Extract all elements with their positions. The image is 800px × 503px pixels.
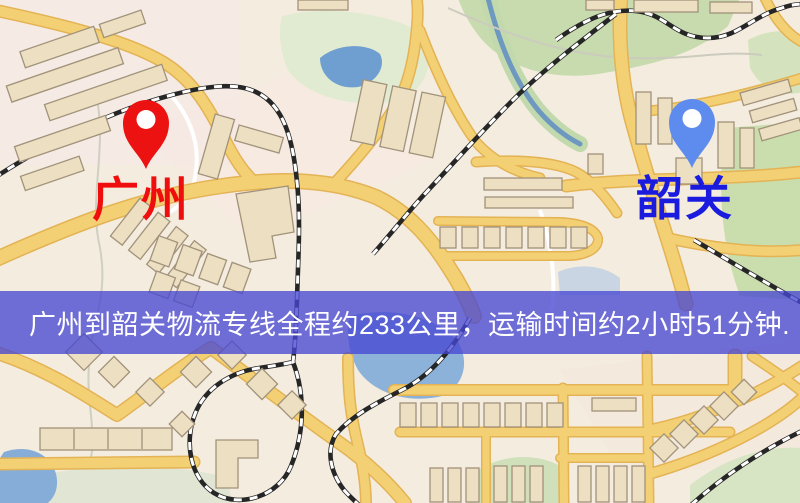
destination-label: 韶关	[636, 177, 734, 224]
route-info-text: 广州到韶关物流专线全程约233公里，运输时间约2小时51分钟.	[29, 303, 790, 342]
origin-label: 广州	[92, 178, 190, 225]
map-screenshot: 广州 韶关 广州到韶关物流专线全程约233公里，运输时间约2小时51分钟.	[0, 0, 800, 503]
route-info-banner: 广州到韶关物流专线全程约233公里，运输时间约2小时51分钟.	[0, 291, 800, 354]
map-canvas[interactable]	[0, 0, 800, 503]
